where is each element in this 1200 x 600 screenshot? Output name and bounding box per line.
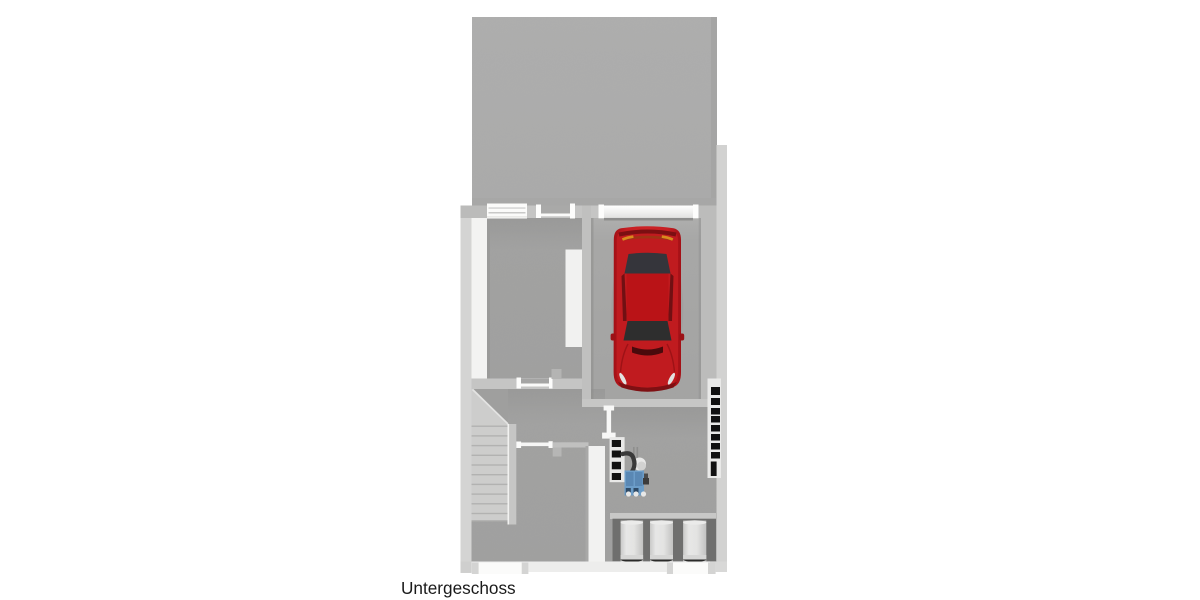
svg-text:Untergeschoss: Untergeschoss <box>401 578 516 598</box>
